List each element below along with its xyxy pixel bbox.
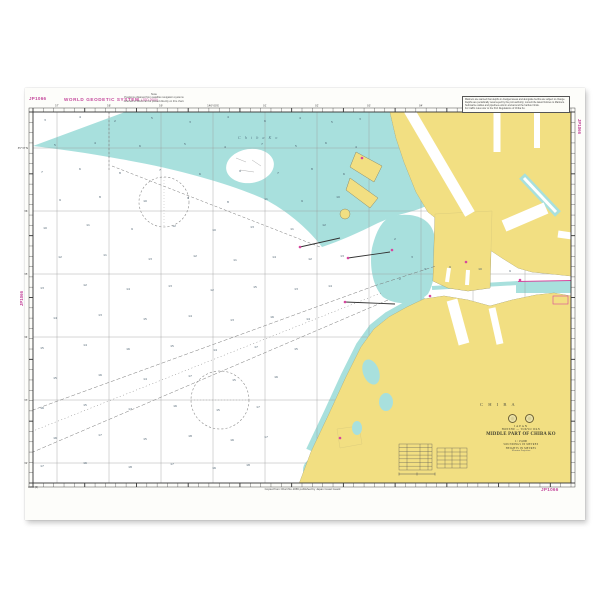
svg-text:7: 7: [277, 171, 279, 175]
nautical-chart-graphic: 3425346453546547564768769786981098119101…: [0, 0, 600, 600]
svg-text:12: 12: [193, 254, 197, 258]
svg-text:32′: 32′: [24, 461, 28, 465]
svg-text:15: 15: [143, 317, 147, 321]
svg-text:9: 9: [131, 227, 133, 231]
chart-number-right-edge: JP1066: [577, 119, 582, 134]
svg-text:2: 2: [394, 237, 396, 241]
projection-note: Mercator Projection: [486, 450, 556, 453]
svg-text:4: 4: [79, 115, 81, 119]
svg-text:17: 17: [188, 374, 192, 378]
svg-text:14: 14: [272, 255, 276, 259]
seal-icon: [525, 414, 534, 423]
svg-text:16: 16: [53, 436, 57, 440]
svg-text:8: 8: [99, 195, 101, 199]
svg-text:17: 17: [256, 405, 260, 409]
svg-text:12: 12: [83, 283, 87, 287]
svg-text:15: 15: [170, 344, 174, 348]
page: { "sheet": { "chart_number": "JP1066", "…: [0, 0, 600, 600]
svg-text:18: 18: [128, 465, 132, 469]
svg-text:17: 17: [98, 433, 102, 437]
caution-line: For traffic rules refer to the Port Regu…: [465, 107, 567, 110]
chart-number-left-edge: JP1066: [19, 291, 24, 306]
svg-text:35°37′N: 35°37′N: [18, 146, 28, 150]
svg-text:2: 2: [114, 119, 116, 123]
svg-text:5: 5: [151, 116, 153, 120]
svg-text:8: 8: [311, 167, 313, 171]
top-note-line: referred to WGS can be plotted directly …: [118, 100, 190, 103]
svg-text:C H I B A: C H I B A: [480, 402, 517, 407]
svg-text:11: 11: [86, 223, 90, 227]
svg-text:15: 15: [40, 346, 44, 350]
svg-text:13: 13: [250, 225, 254, 229]
svg-text:10: 10: [336, 195, 340, 199]
svg-text:C h i b a K o: C h i b a K o: [238, 135, 279, 140]
svg-text:9: 9: [239, 169, 241, 173]
seal-icon: [508, 414, 517, 423]
svg-text:11: 11: [264, 197, 268, 201]
svg-text:18: 18: [188, 434, 192, 438]
svg-text:6: 6: [343, 172, 345, 176]
svg-text:16: 16: [83, 461, 87, 465]
svg-text:14: 14: [306, 317, 310, 321]
svg-text:13: 13: [294, 287, 298, 291]
svg-text:4: 4: [355, 145, 357, 149]
svg-text:10: 10: [143, 199, 147, 203]
svg-text:6: 6: [139, 144, 141, 148]
svg-text:7: 7: [41, 170, 43, 174]
svg-text:15: 15: [253, 285, 257, 289]
svg-text:14: 14: [213, 348, 217, 352]
svg-text:17: 17: [264, 435, 268, 439]
svg-text:13: 13: [148, 257, 152, 261]
svg-text:3: 3: [424, 267, 426, 271]
svg-text:15: 15: [294, 347, 298, 351]
svg-text:34′: 34′: [24, 335, 28, 339]
svg-text:8: 8: [119, 171, 121, 175]
svg-text:02′: 02′: [315, 104, 319, 108]
svg-text:5: 5: [184, 142, 186, 146]
svg-text:03′: 03′: [367, 104, 371, 108]
svg-text:01′: 01′: [263, 104, 267, 108]
chart-number-topleft: JP1066: [29, 96, 46, 101]
svg-text:9: 9: [301, 199, 303, 203]
svg-text:6: 6: [79, 167, 81, 171]
svg-text:5: 5: [331, 120, 333, 124]
svg-text:15: 15: [143, 437, 147, 441]
svg-text:13: 13: [98, 313, 102, 317]
svg-text:11: 11: [290, 227, 294, 231]
svg-text:13: 13: [340, 254, 344, 258]
chart-number-bottomright: JP1066: [541, 487, 559, 492]
svg-text:13: 13: [40, 286, 44, 290]
svg-text:17: 17: [254, 345, 258, 349]
svg-text:9: 9: [187, 196, 189, 200]
title-region: HONSHU — TOKYO WAN: [486, 428, 556, 432]
svg-text:4: 4: [299, 116, 301, 120]
svg-text:4: 4: [224, 145, 226, 149]
svg-text:3: 3: [359, 117, 361, 121]
svg-text:14: 14: [143, 377, 147, 381]
svg-text:140°00′E: 140°00′E: [207, 104, 219, 108]
svg-text:16: 16: [98, 373, 102, 377]
top-note: Note Positions obtained from satellite n…: [118, 93, 190, 103]
svg-text:11: 11: [233, 258, 237, 262]
imprint: Copied from Chart No.1066 published by J…: [205, 487, 400, 491]
svg-text:12: 12: [58, 255, 62, 259]
svg-text:3: 3: [189, 120, 191, 124]
svg-text:7: 7: [261, 142, 263, 146]
svg-text:8: 8: [227, 200, 229, 204]
svg-text:14: 14: [188, 314, 192, 318]
svg-text:15: 15: [216, 408, 220, 412]
svg-text:5: 5: [54, 143, 56, 147]
svg-text:3: 3: [44, 118, 46, 122]
svg-text:13: 13: [168, 284, 172, 288]
svg-text:16: 16: [40, 406, 44, 410]
svg-text:17: 17: [128, 407, 132, 411]
svg-text:59′: 59′: [159, 104, 163, 108]
agency-seals: [486, 414, 556, 423]
svg-text:12: 12: [308, 257, 312, 261]
title-block: JAPAN HONSHU — TOKYO WAN MIDDLE PART OF …: [486, 414, 556, 453]
svg-text:33′: 33′: [24, 398, 28, 402]
svg-text:12: 12: [322, 223, 326, 227]
svg-text:9: 9: [59, 198, 61, 202]
svg-text:7: 7: [159, 168, 161, 172]
bottom-left-note: 1066 (6): [28, 486, 38, 489]
svg-text:57′: 57′: [55, 104, 59, 108]
svg-text:58′: 58′: [107, 104, 111, 108]
svg-text:10: 10: [212, 228, 216, 232]
svg-text:15: 15: [53, 376, 57, 380]
svg-text:17: 17: [40, 464, 44, 468]
svg-text:6: 6: [264, 119, 266, 123]
svg-text:4: 4: [94, 141, 96, 145]
svg-text:16: 16: [212, 466, 216, 470]
svg-text:16: 16: [173, 404, 177, 408]
svg-text:10: 10: [43, 226, 47, 230]
svg-text:14: 14: [126, 287, 130, 291]
svg-text:5: 5: [295, 144, 297, 148]
svg-text:15: 15: [83, 403, 87, 407]
svg-text:3: 3: [411, 255, 413, 259]
svg-text:35′: 35′: [24, 272, 28, 276]
svg-text:18: 18: [246, 463, 250, 467]
svg-text:15: 15: [232, 378, 236, 382]
svg-text:11: 11: [103, 253, 107, 257]
caution-box: Mariners are warned that depths in dredg…: [462, 96, 570, 113]
svg-text:9: 9: [509, 269, 511, 273]
chart-title: MIDDLE PART OF CHIBA KO: [486, 432, 556, 438]
svg-text:6: 6: [325, 141, 327, 145]
svg-text:4: 4: [227, 115, 229, 119]
svg-text:14: 14: [53, 316, 57, 320]
svg-text:14: 14: [328, 284, 332, 288]
svg-text:2: 2: [399, 277, 401, 281]
svg-text:12: 12: [210, 288, 214, 292]
svg-text:10: 10: [478, 267, 482, 271]
svg-text:36′: 36′: [24, 209, 28, 213]
svg-text:6: 6: [199, 172, 201, 176]
svg-text:14: 14: [83, 343, 87, 347]
svg-text:17: 17: [170, 462, 174, 466]
svg-text:16: 16: [274, 375, 278, 379]
svg-text:9: 9: [449, 265, 451, 269]
svg-text:16: 16: [126, 347, 130, 351]
svg-text:16: 16: [230, 438, 234, 442]
svg-text:16: 16: [270, 315, 274, 319]
svg-text:12: 12: [172, 224, 176, 228]
svg-text:04′: 04′: [419, 104, 423, 108]
svg-text:13: 13: [230, 318, 234, 322]
